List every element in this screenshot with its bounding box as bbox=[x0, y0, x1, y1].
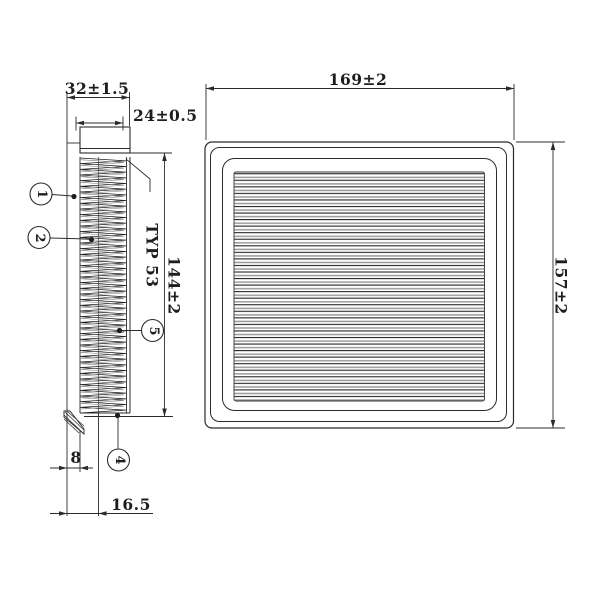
callout-number-5: 5 bbox=[144, 320, 162, 342]
pleat-note-typ53: TYP 53 bbox=[143, 216, 162, 296]
dim-label-32: 32±1.5 bbox=[57, 79, 137, 98]
callout-dot-4 bbox=[115, 413, 120, 418]
dim-label-8: 8 bbox=[66, 448, 86, 467]
callout-dot-5 bbox=[117, 328, 122, 333]
drawing-canvas: 32±1.5 24±0.5 TYP 53 144±2 8 16.5 169±2 … bbox=[0, 0, 600, 600]
callout-dot-2 bbox=[89, 237, 94, 242]
side-view-top-cap bbox=[80, 127, 130, 153]
dim-label-24: 24±0.5 bbox=[133, 106, 205, 125]
callout-number-4: 4 bbox=[110, 449, 128, 471]
top-view-pleat-area bbox=[234, 172, 485, 401]
callout-dot-1 bbox=[71, 194, 76, 199]
top-view bbox=[205, 142, 514, 428]
dim-label-165: 16.5 bbox=[101, 495, 161, 514]
dim-label-157: 157±2 bbox=[552, 246, 571, 326]
callout-number-2: 2 bbox=[30, 227, 48, 249]
callout-number-1: 1 bbox=[32, 183, 50, 205]
dim-label-144: 144±2 bbox=[165, 246, 184, 326]
dim-label-169: 169±2 bbox=[318, 70, 398, 89]
extension-lines-169 bbox=[206, 84, 514, 140]
